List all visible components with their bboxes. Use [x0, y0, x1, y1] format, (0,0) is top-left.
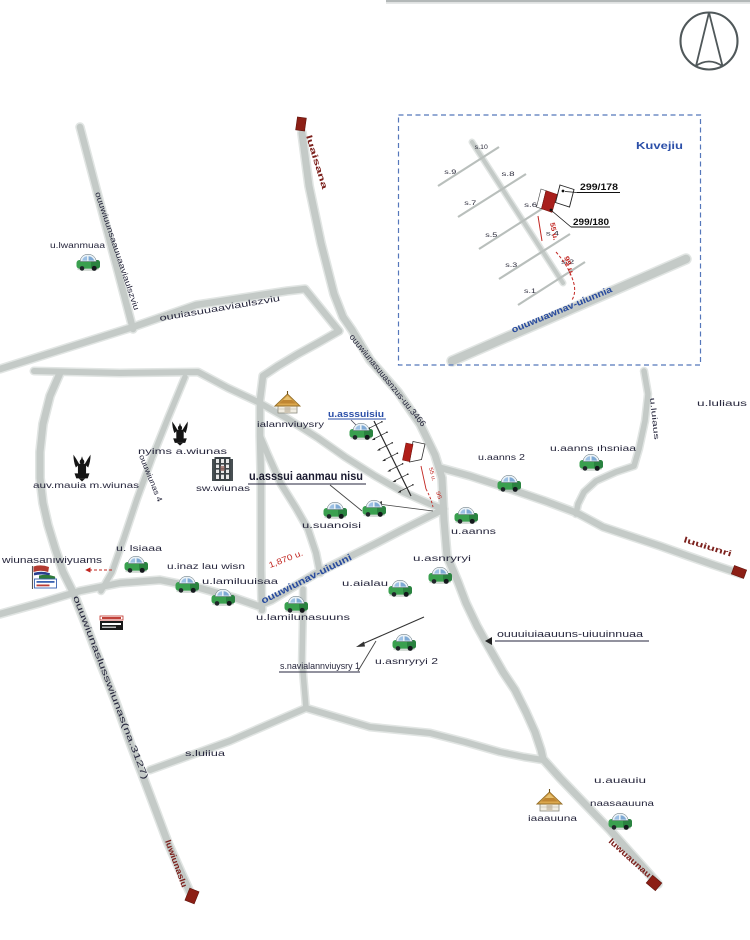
- svg-text:sw.wiunas: sw.wiunas: [196, 483, 250, 493]
- svg-text:u.auauiu: u.auauiu: [594, 775, 646, 785]
- svg-text:s.1: s.1: [524, 289, 537, 295]
- svg-text:299/180: 299/180: [573, 217, 609, 228]
- svg-text:s.navialannviuysry 1: s.navialannviuysry 1: [280, 661, 360, 671]
- svg-text:s.3: s.3: [505, 263, 518, 269]
- svg-text:s.7: s.7: [464, 201, 477, 207]
- svg-text:u.asnryryi: u.asnryryi: [413, 553, 471, 563]
- svg-text:u.asnryryi 2: u.asnryryi 2: [375, 656, 438, 666]
- svg-text:u.suanoisi: u.suanoisi: [302, 520, 361, 530]
- svg-text:ouuuiuiaauuns-uiuuinnuaa: ouuuiuiaauuns-uiuuinnuaa: [497, 629, 644, 639]
- svg-text:u.asssui aanmau nisu: u.asssui aanmau nisu: [249, 471, 363, 483]
- svg-text:u.aanns 2: u.aanns 2: [478, 452, 525, 462]
- svg-text:s.6: s.6: [524, 203, 538, 209]
- svg-text:u.aanns ıhsniaa: u.aanns ıhsniaa: [550, 443, 636, 453]
- svg-text:nyims a.wiunas: nyims a.wiunas: [138, 446, 227, 456]
- svg-text:ialannviuysry: ialannviuysry: [257, 419, 325, 429]
- svg-text:299/178: 299/178: [580, 182, 618, 193]
- svg-text:u.lwanmuaa: u.lwanmuaa: [50, 240, 105, 250]
- svg-text:auv.mauia m.wiunas: auv.mauia m.wiunas: [33, 480, 139, 490]
- svg-text:s.5: s.5: [485, 233, 498, 239]
- svg-text:Kuvejiu: Kuvejiu: [636, 141, 683, 152]
- svg-text:u.inaz lau wisn: u.inaz lau wisn: [167, 561, 245, 571]
- svg-text:wiunasanıwiyuams: wiunasanıwiyuams: [1, 555, 103, 565]
- svg-text:s.luiiua: s.luiiua: [185, 748, 225, 758]
- svg-text:iaaauuna: iaaauuna: [528, 813, 577, 823]
- svg-text:u.lamilunasuuns: u.lamilunasuuns: [256, 612, 350, 622]
- svg-text:u.lamiluuisaa: u.lamiluuisaa: [202, 576, 278, 586]
- svg-text:s.9: s.9: [444, 170, 457, 176]
- svg-text:s.8: s.8: [502, 172, 516, 178]
- svg-text:u. lsiaaa: u. lsiaaa: [116, 543, 162, 553]
- svg-text:s.10: s.10: [475, 145, 489, 151]
- svg-text:u.luliaus: u.luliaus: [697, 398, 747, 408]
- svg-text:u.asssuisiu: u.asssuisiu: [328, 409, 384, 419]
- svg-text:naasaauuna: naasaauuna: [590, 798, 654, 808]
- svg-text:u.aialau: u.aialau: [342, 578, 388, 588]
- svg-text:u.aanns: u.aanns: [451, 526, 496, 536]
